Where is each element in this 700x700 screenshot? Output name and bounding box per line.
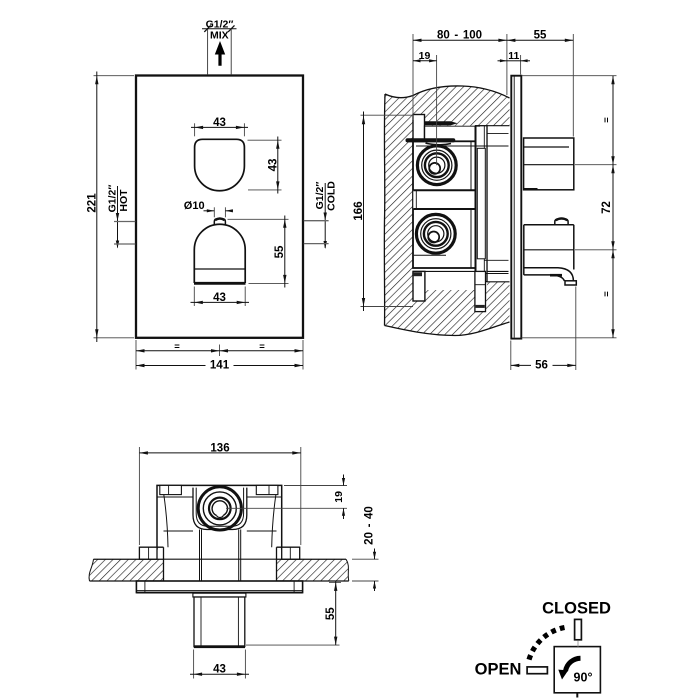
- svg-text:141: 141: [210, 360, 230, 372]
- svg-text:55: 55: [274, 245, 286, 258]
- svg-text:=: =: [174, 341, 180, 352]
- svg-text:MIX: MIX: [210, 30, 229, 42]
- svg-text:55: 55: [325, 607, 337, 620]
- svg-text:Ø10: Ø10: [184, 200, 205, 212]
- svg-text:20 - 40: 20 - 40: [364, 506, 376, 545]
- svg-text:166: 166: [353, 201, 365, 220]
- svg-text:=: =: [259, 341, 265, 352]
- svg-text:43: 43: [267, 159, 279, 172]
- svg-text:43: 43: [213, 664, 226, 676]
- svg-text:G1/2″: G1/2″: [314, 182, 326, 210]
- svg-text:136: 136: [210, 442, 229, 454]
- svg-text:43: 43: [213, 292, 226, 304]
- svg-text:72: 72: [601, 201, 613, 214]
- svg-text:90°: 90°: [574, 671, 593, 685]
- svg-text:CLOSED: CLOSED: [542, 600, 611, 618]
- svg-text:56: 56: [535, 360, 548, 372]
- svg-text:19: 19: [419, 50, 431, 62]
- svg-text:=: =: [602, 291, 613, 297]
- svg-text:HOT: HOT: [118, 189, 130, 212]
- svg-text:=: =: [602, 117, 613, 123]
- svg-text:55: 55: [534, 29, 547, 41]
- svg-text:COLD: COLD: [326, 181, 338, 211]
- svg-text:43: 43: [213, 117, 226, 129]
- svg-text:11: 11: [508, 50, 519, 62]
- svg-text:19: 19: [333, 491, 345, 503]
- svg-text:G1/2″: G1/2″: [106, 185, 118, 213]
- svg-text:221: 221: [86, 193, 98, 213]
- svg-text:OPEN: OPEN: [475, 661, 522, 679]
- svg-text:80 - 100: 80 - 100: [437, 29, 482, 41]
